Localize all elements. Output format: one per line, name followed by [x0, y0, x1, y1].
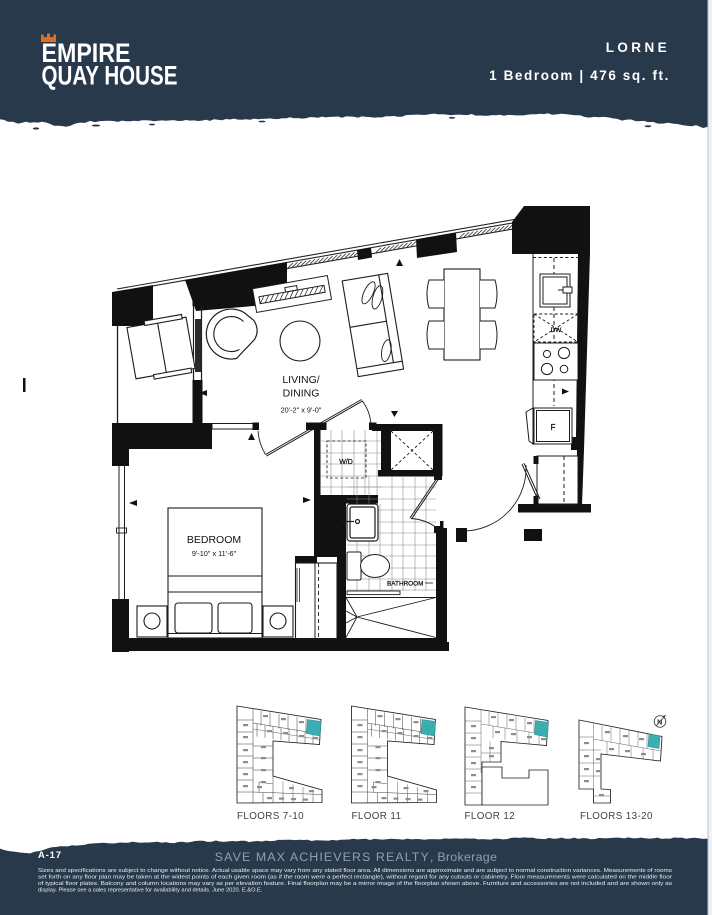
svg-text:F: F [551, 423, 556, 432]
svg-text:9'-10" x 11'-6": 9'-10" x 11'-6" [192, 549, 237, 558]
svg-text:1 Bedroom | 476 sq. ft.: 1 Bedroom | 476 sq. ft. [489, 68, 670, 83]
svg-text:BATHROOM: BATHROOM [387, 581, 423, 588]
svg-text:DINING: DINING [283, 388, 320, 400]
svg-text:FLOORS 13-20: FLOORS 13-20 [580, 811, 653, 822]
svg-text:N: N [657, 717, 662, 726]
svg-text:FLOOR 11: FLOOR 11 [352, 811, 402, 822]
svg-text:LIVING/: LIVING/ [282, 374, 319, 386]
svg-text:BEDROOM: BEDROOM [187, 534, 241, 546]
svg-text:LORNE: LORNE [606, 40, 670, 55]
svg-text:FLOOR 12: FLOOR 12 [465, 811, 516, 822]
svg-text:W/D: W/D [339, 459, 353, 466]
svg-text:SAVE MAX ACHIEVERS REALTY, Bro: SAVE MAX ACHIEVERS REALTY, Brokerage [215, 850, 497, 864]
svg-text:DW: DW [551, 327, 563, 334]
svg-text:A-17: A-17 [38, 850, 62, 861]
svg-text:display. Please see a sales re: display. Please see a sales representati… [38, 888, 263, 894]
svg-text:20'-2" x 9'-0": 20'-2" x 9'-0" [281, 406, 322, 415]
svg-text:QUAY HOUSE: QUAY HOUSE [42, 62, 178, 91]
svg-text:FLOORS 7-10: FLOORS 7-10 [237, 811, 304, 822]
svg-text:set forth on any floor plan ma: set forth on any floor plan may be taken… [38, 875, 672, 881]
svg-text:Sizes and specifications are s: Sizes and specifications are subject to … [38, 868, 672, 874]
svg-text:of typical floor plates. Balco: of typical floor plates. Balcony and col… [38, 881, 672, 887]
